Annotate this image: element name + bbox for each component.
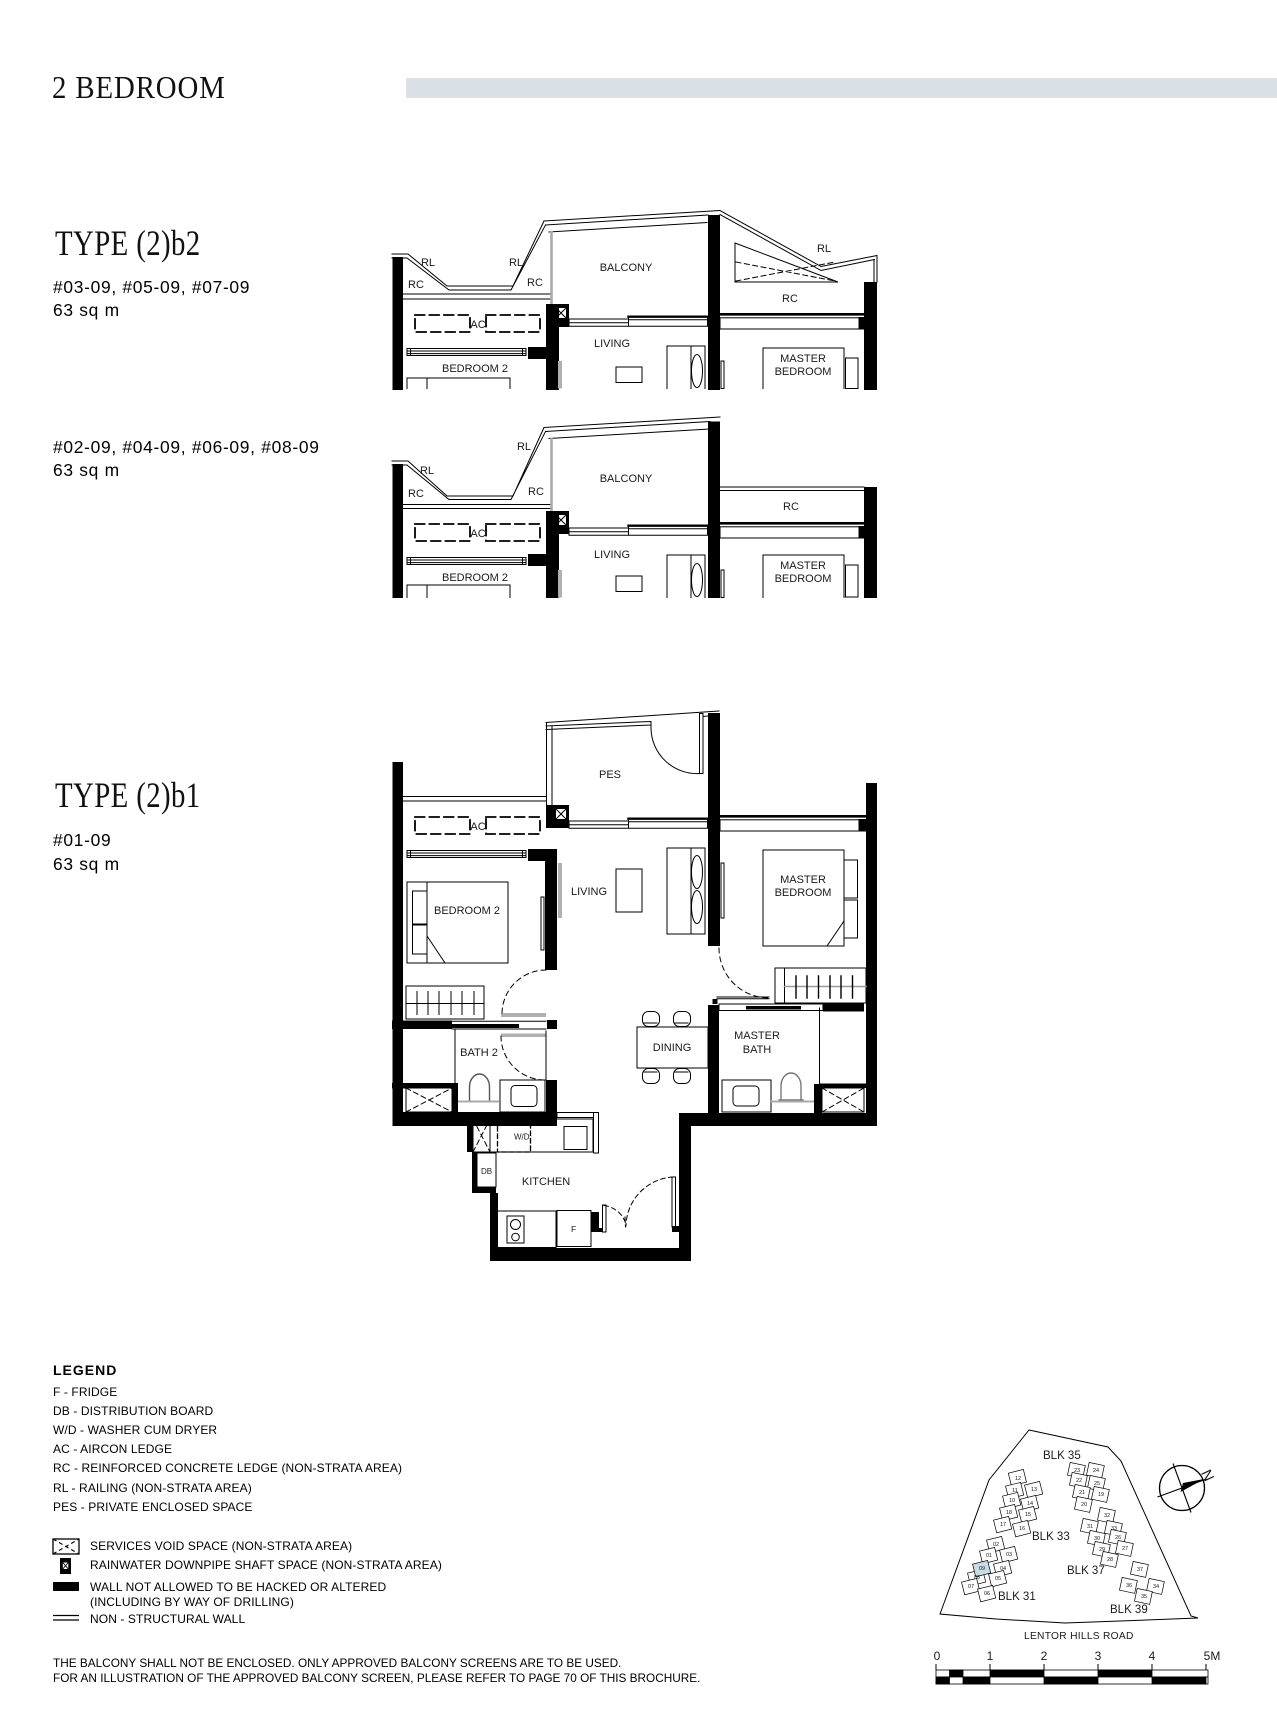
svg-text:16: 16 (1019, 1526, 1025, 1532)
svg-text:31: 31 (1087, 1524, 1093, 1530)
svg-text:DINING: DINING (653, 1042, 692, 1054)
svg-text:0: 0 (934, 1649, 941, 1663)
svg-text:32: 32 (1104, 1513, 1110, 1519)
svg-text:11: 11 (1012, 1488, 1018, 1494)
svg-text:RL: RL (817, 243, 831, 255)
svg-text:03: 03 (1006, 1552, 1012, 1558)
svg-text:BEDROOM: BEDROOM (775, 573, 832, 585)
svg-text:LIVING: LIVING (594, 549, 630, 561)
svg-text:BLK 31: BLK 31 (998, 1591, 1036, 1603)
svg-text:RC: RC (528, 486, 544, 498)
svg-text:15: 15 (1025, 1512, 1031, 1518)
svg-text:06: 06 (984, 1591, 990, 1597)
svg-text:BATH 2: BATH 2 (460, 1047, 498, 1059)
svg-text:21: 21 (1079, 1490, 1085, 1496)
svg-text:BLK 33: BLK 33 (1032, 1531, 1070, 1543)
svg-text:12: 12 (1015, 1476, 1021, 1482)
svg-text:19: 19 (1098, 1492, 1104, 1498)
svg-text:37: 37 (1137, 1567, 1143, 1573)
svg-text:MASTER: MASTER (780, 353, 826, 365)
svg-text:5M: 5M (1204, 1649, 1221, 1663)
svg-text:23: 23 (1074, 1468, 1080, 1474)
svg-text:14: 14 (1027, 1501, 1033, 1507)
svg-text:LIVING: LIVING (571, 886, 607, 898)
svg-text:BEDROOM: BEDROOM (775, 887, 832, 899)
svg-text:BEDROOM: BEDROOM (775, 366, 832, 378)
svg-text:BLK 39: BLK 39 (1110, 1604, 1148, 1616)
svg-text:BLK 35: BLK 35 (1043, 1450, 1081, 1462)
svg-text:09: 09 (979, 1566, 985, 1572)
svg-text:RC: RC (783, 501, 799, 513)
svg-text:MASTER: MASTER (734, 1030, 780, 1042)
svg-text:18: 18 (1006, 1510, 1012, 1516)
svg-text:17: 17 (1000, 1522, 1006, 1528)
svg-text:30: 30 (1094, 1536, 1100, 1542)
svg-text:24: 24 (1093, 1468, 1099, 1474)
svg-text:07: 07 (968, 1584, 974, 1590)
svg-text:LENTOR HILLS ROAD: LENTOR HILLS ROAD (1024, 1631, 1134, 1642)
svg-text:27: 27 (1122, 1546, 1128, 1552)
svg-text:34: 34 (1153, 1584, 1159, 1590)
svg-text:35: 35 (1141, 1594, 1147, 1600)
svg-text:KITCHEN: KITCHEN (522, 1176, 570, 1188)
svg-text:MASTER: MASTER (780, 560, 826, 572)
svg-text:MASTER: MASTER (780, 874, 826, 886)
svg-text:RC: RC (782, 293, 798, 305)
svg-text:BATH: BATH (743, 1044, 772, 1056)
svg-text:26: 26 (1115, 1535, 1121, 1541)
svg-text:4: 4 (1149, 1649, 1156, 1663)
svg-text:F: F (571, 1224, 576, 1234)
svg-text:13: 13 (1031, 1487, 1037, 1493)
svg-text:RL: RL (517, 441, 531, 453)
svg-text:RL: RL (420, 465, 434, 477)
svg-text:BALCONY: BALCONY (600, 262, 653, 274)
svg-text:22: 22 (1076, 1478, 1082, 1484)
svg-text:29: 29 (1099, 1547, 1105, 1553)
svg-text:AC: AC (470, 319, 485, 331)
svg-text:BALCONY: BALCONY (600, 473, 653, 485)
svg-text:1: 1 (987, 1649, 994, 1663)
svg-text:10: 10 (1009, 1498, 1015, 1504)
svg-text:BEDROOM 2: BEDROOM 2 (434, 905, 500, 917)
svg-text:20: 20 (1081, 1502, 1087, 1508)
svg-text:RC: RC (408, 279, 424, 291)
svg-text:04: 04 (1000, 1566, 1006, 1572)
svg-text:LIVING: LIVING (594, 338, 630, 350)
svg-text:08: 08 (974, 1575, 980, 1581)
svg-text:33: 33 (1111, 1526, 1117, 1532)
svg-text:02: 02 (993, 1542, 999, 1548)
svg-text:05: 05 (995, 1576, 1001, 1582)
svg-text:3: 3 (1095, 1649, 1102, 1663)
svg-text:28: 28 (1107, 1557, 1113, 1563)
svg-text:RL: RL (421, 257, 435, 269)
svg-text:RC: RC (408, 488, 424, 500)
svg-text:RC: RC (527, 277, 543, 289)
svg-text:PES: PES (599, 769, 621, 781)
svg-text:36: 36 (1126, 1583, 1132, 1589)
svg-text:BLK 37: BLK 37 (1067, 1565, 1105, 1577)
svg-text:2: 2 (1041, 1649, 1048, 1663)
svg-text:RL: RL (509, 257, 523, 269)
svg-text:AC: AC (470, 528, 485, 540)
svg-text:DB: DB (481, 1167, 492, 1176)
svg-text:W/D: W/D (514, 1133, 530, 1142)
svg-text:BEDROOM 2: BEDROOM 2 (442, 572, 508, 584)
svg-text:AC: AC (470, 821, 485, 833)
svg-text:25: 25 (1094, 1481, 1100, 1487)
svg-text:BEDROOM 2: BEDROOM 2 (442, 363, 508, 375)
svg-text:01: 01 (986, 1553, 992, 1559)
